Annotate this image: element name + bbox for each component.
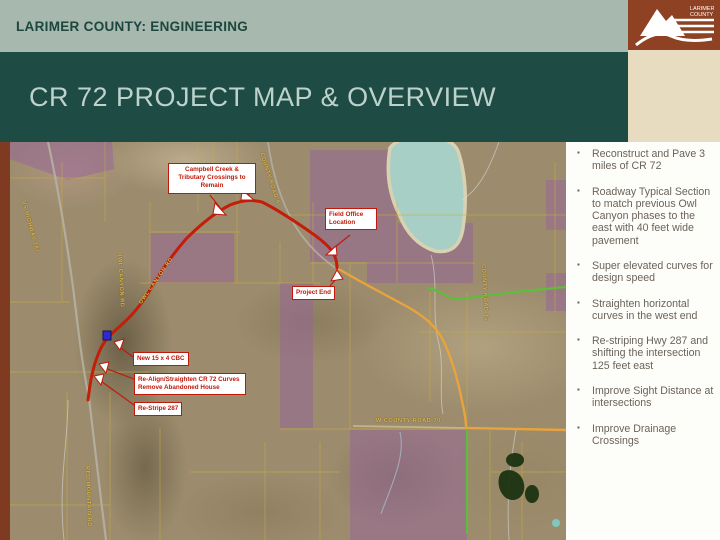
bullet-item: Super elevated curves for design speed — [566, 260, 718, 285]
bullet-item: Improve Drainage Crossings — [566, 423, 718, 448]
county-logo: LARIMER COUNTY — [628, 0, 720, 50]
road-label-cr70: W COUNTY ROAD 70 — [376, 418, 441, 424]
annotation-campbell-creek: Campbell Creek & Tributary Crossings to … — [168, 163, 256, 194]
annotation-project-end: Project End — [292, 286, 335, 300]
annotation-restripe-287: Re-Stripe 287 — [134, 402, 182, 416]
page-title: CR 72 PROJECT MAP & OVERVIEW — [0, 82, 496, 113]
ponds — [499, 453, 539, 503]
header-eyebrow: LARIMER COUNTY: ENGINEERING — [0, 19, 248, 34]
overview-panel: Reconstruct and Pave 3 miles of CR 72 Ro… — [566, 142, 720, 540]
header-band: LARIMER COUNTY: ENGINEERING — [0, 0, 628, 53]
mountain-logo-icon: LARIMER COUNTY — [628, 0, 720, 50]
slide-root: LARIMER COUNTY: ENGINEERING LARIMER COUN… — [0, 0, 720, 540]
title-band: CR 72 PROJECT MAP & OVERVIEW — [0, 52, 628, 142]
bullet-item: Re-striping Hwy 287 and shifting the int… — [566, 335, 718, 372]
bullet-item: Improve Sight Distance at intersections — [566, 385, 718, 410]
bullet-item: Straighten horizontal curves in the west… — [566, 298, 718, 323]
left-accent-strip — [0, 142, 10, 540]
blue-culvert-marker — [103, 331, 111, 340]
county-road-70-west-line — [353, 426, 466, 428]
parcel-overlays — [10, 142, 566, 540]
annotation-new-cbc: New 15 x 4 CBC — [133, 352, 189, 366]
project-map: US HIGHWAY 287 OWL CANYON RD OWL CANYON … — [10, 142, 566, 540]
highway-287-line — [48, 142, 106, 540]
county-road-70-line — [337, 268, 566, 430]
small-pond — [552, 519, 560, 527]
annotation-field-office: Field Office Location — [325, 208, 377, 230]
overview-bullet-list: Reconstruct and Pave 3 miles of CR 72 Ro… — [566, 142, 720, 447]
side-accent-block — [628, 50, 720, 142]
bullet-item: Roadway Typical Section to match previou… — [566, 186, 718, 247]
bullet-item: Reconstruct and Pave 3 miles of CR 72 — [566, 148, 718, 173]
annotation-realign-curves: Re-Align/Straighten CR 72 Curves Remove … — [134, 373, 246, 395]
logo-text-line2: COUNTY — [690, 12, 714, 18]
